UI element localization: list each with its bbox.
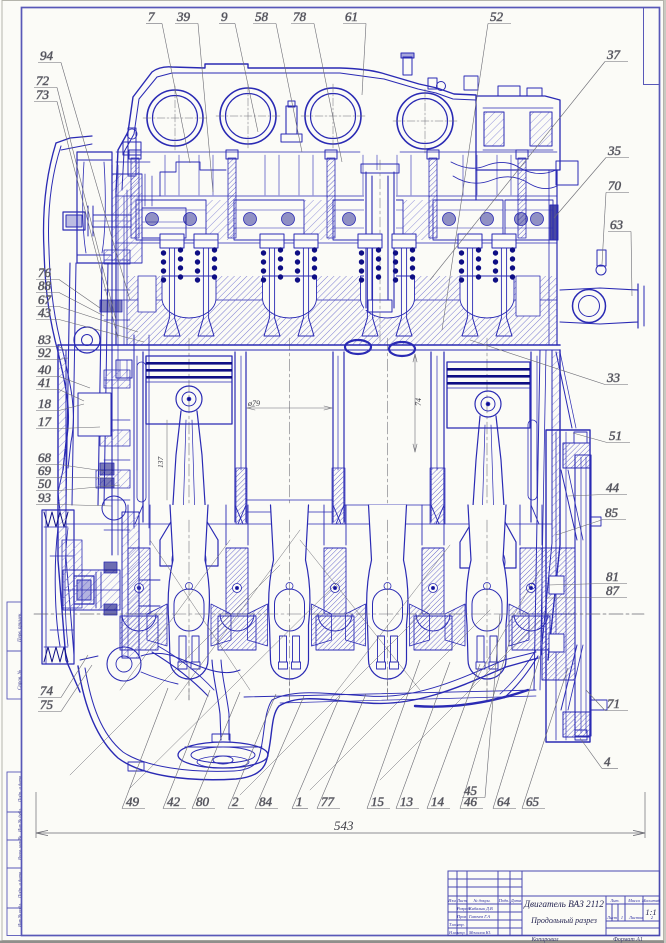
svg-text:4: 4 <box>604 754 611 769</box>
svg-text:ø79: ø79 <box>247 399 260 408</box>
svg-text:35: 35 <box>607 143 622 158</box>
svg-text:80: 80 <box>196 794 210 809</box>
svg-text:Продольный разрез: Продольный разрез <box>530 916 597 925</box>
svg-text:543: 543 <box>334 818 354 833</box>
svg-text:72: 72 <box>36 73 50 88</box>
svg-text:Гавочев Г.А: Гавочев Г.А <box>468 914 490 919</box>
svg-text:Формат А1: Формат А1 <box>613 937 643 943</box>
svg-text:Изм: Изм <box>447 898 456 903</box>
svg-text:Лист: Лист <box>606 915 617 920</box>
svg-text:Инв.№ подл.: Инв.№ подл. <box>17 903 22 928</box>
svg-text:45: 45 <box>464 783 478 798</box>
svg-text:44: 44 <box>606 480 620 495</box>
svg-text:13: 13 <box>400 794 414 809</box>
svg-text:Двигатель ВАЗ 2112: Двигатель ВАЗ 2112 <box>523 900 604 910</box>
svg-text:49: 49 <box>126 794 140 809</box>
svg-text:87: 87 <box>606 583 620 598</box>
svg-text:7: 7 <box>148 9 155 24</box>
svg-text:92: 92 <box>38 345 52 360</box>
svg-text:Копировал: Копировал <box>531 937 559 943</box>
svg-text:52: 52 <box>490 9 504 24</box>
svg-text:9: 9 <box>221 9 228 24</box>
svg-text:93: 93 <box>38 490 52 505</box>
svg-text:15: 15 <box>371 794 385 809</box>
svg-text:84: 84 <box>259 794 273 809</box>
svg-text:77: 77 <box>321 794 335 809</box>
svg-text:65: 65 <box>526 794 540 809</box>
svg-text:43: 43 <box>38 305 52 320</box>
svg-text:73: 73 <box>36 87 50 102</box>
svg-text:Дата: Дата <box>510 898 521 903</box>
svg-text:33: 33 <box>606 370 621 385</box>
svg-text:50: 50 <box>38 476 52 491</box>
svg-text:37: 37 <box>606 47 621 62</box>
svg-text:74: 74 <box>40 683 54 698</box>
svg-text:Т.контр.: Т.контр. <box>449 922 465 927</box>
svg-text:Пров.: Пров. <box>456 914 467 919</box>
svg-text:64: 64 <box>497 794 511 809</box>
svg-text:Подп. и дата: Подп. и дата <box>17 871 22 899</box>
svg-text:Перв. примен.: Перв. примен. <box>18 612 23 643</box>
svg-text:70: 70 <box>608 178 622 193</box>
svg-text:Кабалык Д.В: Кабалык Д.В <box>468 906 493 911</box>
svg-text:75: 75 <box>40 697 54 712</box>
svg-text:Подп.: Подп. <box>498 898 510 903</box>
svg-text:61: 61 <box>345 9 358 24</box>
svg-text:№ докум.: № докум. <box>472 898 490 903</box>
svg-text:42: 42 <box>167 794 181 809</box>
svg-text:Взам. инв.№: Взам. инв.№ <box>17 835 22 860</box>
svg-text:74: 74 <box>414 398 423 406</box>
svg-text:Лит.: Лит. <box>609 898 619 903</box>
svg-text:81: 81 <box>606 569 619 584</box>
svg-text:Масса: Масса <box>627 898 640 903</box>
svg-text:Листов: Листов <box>628 915 643 920</box>
svg-text:88: 88 <box>38 278 52 293</box>
svg-text:17: 17 <box>38 414 52 429</box>
svg-text:94: 94 <box>40 48 54 63</box>
svg-text:137: 137 <box>156 457 165 469</box>
svg-text:41: 41 <box>38 375 51 390</box>
svg-text:63: 63 <box>610 217 624 232</box>
svg-text:18: 18 <box>38 396 52 411</box>
svg-text:58: 58 <box>255 9 269 24</box>
svg-text:85: 85 <box>605 505 619 520</box>
svg-text:1:1: 1:1 <box>645 907 656 917</box>
svg-text:Подп. и дата: Подп. и дата <box>17 775 22 803</box>
svg-text:51: 51 <box>609 428 622 443</box>
svg-text:14: 14 <box>431 794 445 809</box>
svg-text:1: 1 <box>621 915 623 920</box>
svg-text:Лист: Лист <box>456 898 467 903</box>
svg-text:Мочалов Ю.: Мочалов Ю. <box>468 930 491 935</box>
svg-text:78: 78 <box>293 9 307 24</box>
svg-text:Инв.№ дубл.: Инв.№ дубл. <box>17 808 22 833</box>
svg-text:39: 39 <box>176 9 191 24</box>
svg-text:Справ. №: Справ. № <box>17 669 23 690</box>
svg-text:Н.контр.: Н.контр. <box>448 930 466 935</box>
svg-text:71: 71 <box>607 696 620 711</box>
svg-text:Масштаб: Масштаб <box>641 898 661 903</box>
